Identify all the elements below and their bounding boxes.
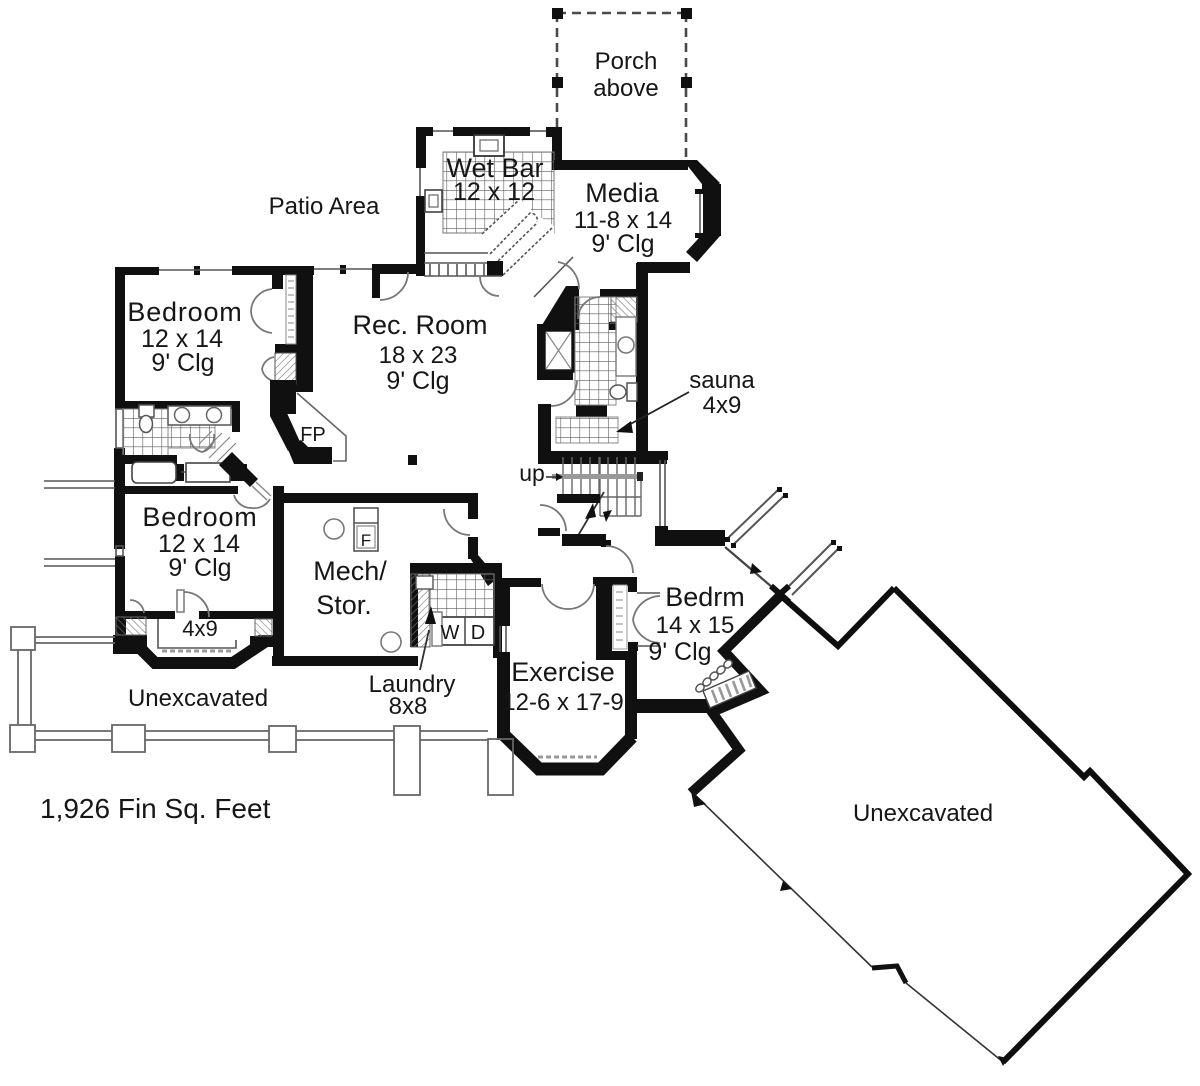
svg-text:Patio Area: Patio Area: [269, 193, 380, 220]
svg-text:14 x 15: 14 x 15: [656, 612, 735, 639]
svg-text:F: F: [361, 531, 371, 550]
svg-text:D: D: [471, 622, 485, 644]
svg-text:W: W: [441, 622, 460, 644]
svg-text:18 x 23: 18 x 23: [379, 342, 458, 369]
svg-text:4x9: 4x9: [182, 616, 217, 641]
svg-text:Media: Media: [585, 178, 660, 208]
svg-text:sauna: sauna: [689, 367, 755, 394]
svg-text:Mech/: Mech/: [313, 556, 387, 586]
svg-text:above: above: [593, 75, 658, 102]
svg-text:9' Clg: 9' Clg: [386, 367, 449, 395]
svg-text:9' Clg: 9' Clg: [591, 230, 654, 258]
svg-text:up: up: [519, 460, 545, 486]
svg-text:FP: FP: [300, 424, 326, 446]
svg-text:Bedrm: Bedrm: [665, 582, 745, 612]
svg-text:Rec. Room: Rec. Room: [352, 310, 487, 340]
svg-text:12 x 12: 12 x 12: [453, 178, 535, 206]
svg-text:Exercise: Exercise: [511, 657, 615, 687]
svg-text:11-8 x 14: 11-8 x 14: [574, 207, 672, 234]
svg-text:4x9: 4x9: [703, 392, 742, 419]
svg-text:9' Clg: 9' Clg: [168, 554, 231, 582]
svg-text:9' Clg: 9' Clg: [648, 638, 711, 666]
svg-text:8x8: 8x8: [389, 693, 428, 720]
svg-text:Porch: Porch: [595, 48, 658, 75]
svg-text:Stor.: Stor.: [316, 590, 372, 620]
svg-text:Bedroom: Bedroom: [142, 502, 257, 532]
svg-text:Bedroom: Bedroom: [127, 297, 242, 327]
svg-text:Unexcavated: Unexcavated: [853, 800, 993, 827]
svg-text:12-6 x 17-9: 12-6 x 17-9: [502, 689, 623, 716]
svg-text:Unexcavated: Unexcavated: [128, 685, 268, 712]
svg-text:9' Clg: 9' Clg: [151, 349, 214, 377]
svg-text:1,926 Fin Sq. Feet: 1,926 Fin Sq. Feet: [40, 793, 271, 824]
